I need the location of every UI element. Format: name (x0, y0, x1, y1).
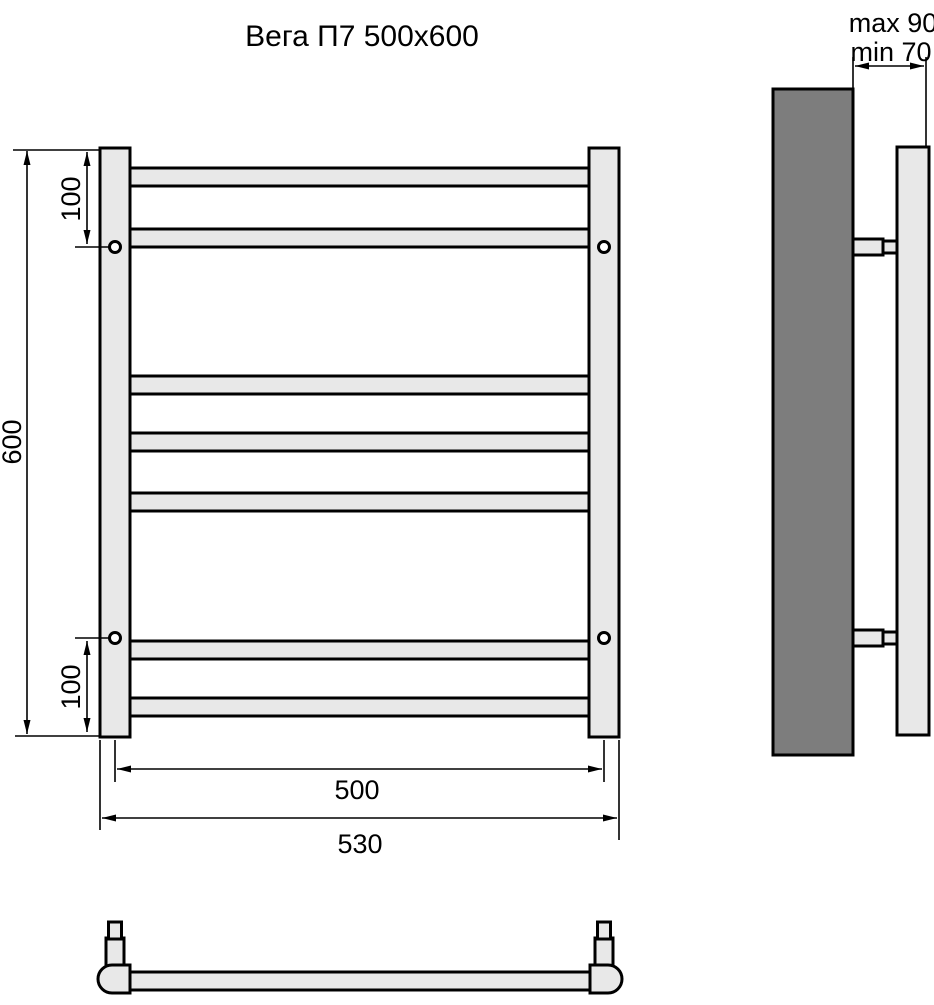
rail-rung (130, 229, 589, 247)
bracket-arm (853, 239, 883, 255)
left-collector (100, 148, 130, 737)
towel-rail-drawing: Вега П7 500x600 (0, 0, 934, 1000)
dim-label-width-overall: 530 (337, 829, 382, 859)
rail-rung (130, 641, 589, 659)
technical-drawing: Вега П7 500x600 (0, 0, 934, 1000)
bottom-tube (130, 972, 590, 990)
mounting-hole-top-right (599, 242, 610, 253)
fitting-tip-right (598, 922, 611, 939)
side-panel (773, 89, 853, 755)
right-collector (589, 148, 619, 737)
rail-rung (130, 376, 589, 394)
bottom-cap-right (590, 965, 622, 993)
bracket-foot (883, 632, 897, 644)
bracket-foot (883, 241, 897, 253)
mounting-hole-bottom-right (599, 633, 610, 644)
rail-rung (130, 168, 589, 186)
drawing-title: Вега П7 500x600 (245, 20, 479, 53)
bracket-arm (853, 630, 883, 646)
wall-bracket-top (853, 239, 897, 255)
rail-rung (130, 493, 589, 511)
mounting-hole-top-left (110, 242, 121, 253)
fitting-tip-left (109, 922, 122, 939)
dim-label-width-centers: 500 (334, 775, 379, 805)
rail-rungs (130, 168, 589, 716)
wall-strip (897, 147, 929, 735)
front-view (100, 148, 619, 737)
dim-label-depth-min: min 70 (850, 37, 931, 67)
dim-label-bottom-offset: 100 (56, 664, 86, 709)
fitting-stub-right (595, 938, 613, 967)
dim-label-depth-max: max 90 (849, 8, 934, 38)
dim-label-height: 600 (0, 419, 27, 464)
bottom-view (98, 922, 622, 993)
wall-bracket-bottom (853, 630, 897, 646)
mounting-hole-bottom-left (110, 633, 121, 644)
rail-rung (130, 433, 589, 451)
fitting-stub-left (106, 938, 124, 967)
bottom-cap-left (98, 965, 130, 993)
side-view: max 90 min 70 (773, 8, 934, 755)
rail-rung (130, 698, 589, 716)
dim-label-top-offset: 100 (56, 176, 86, 221)
